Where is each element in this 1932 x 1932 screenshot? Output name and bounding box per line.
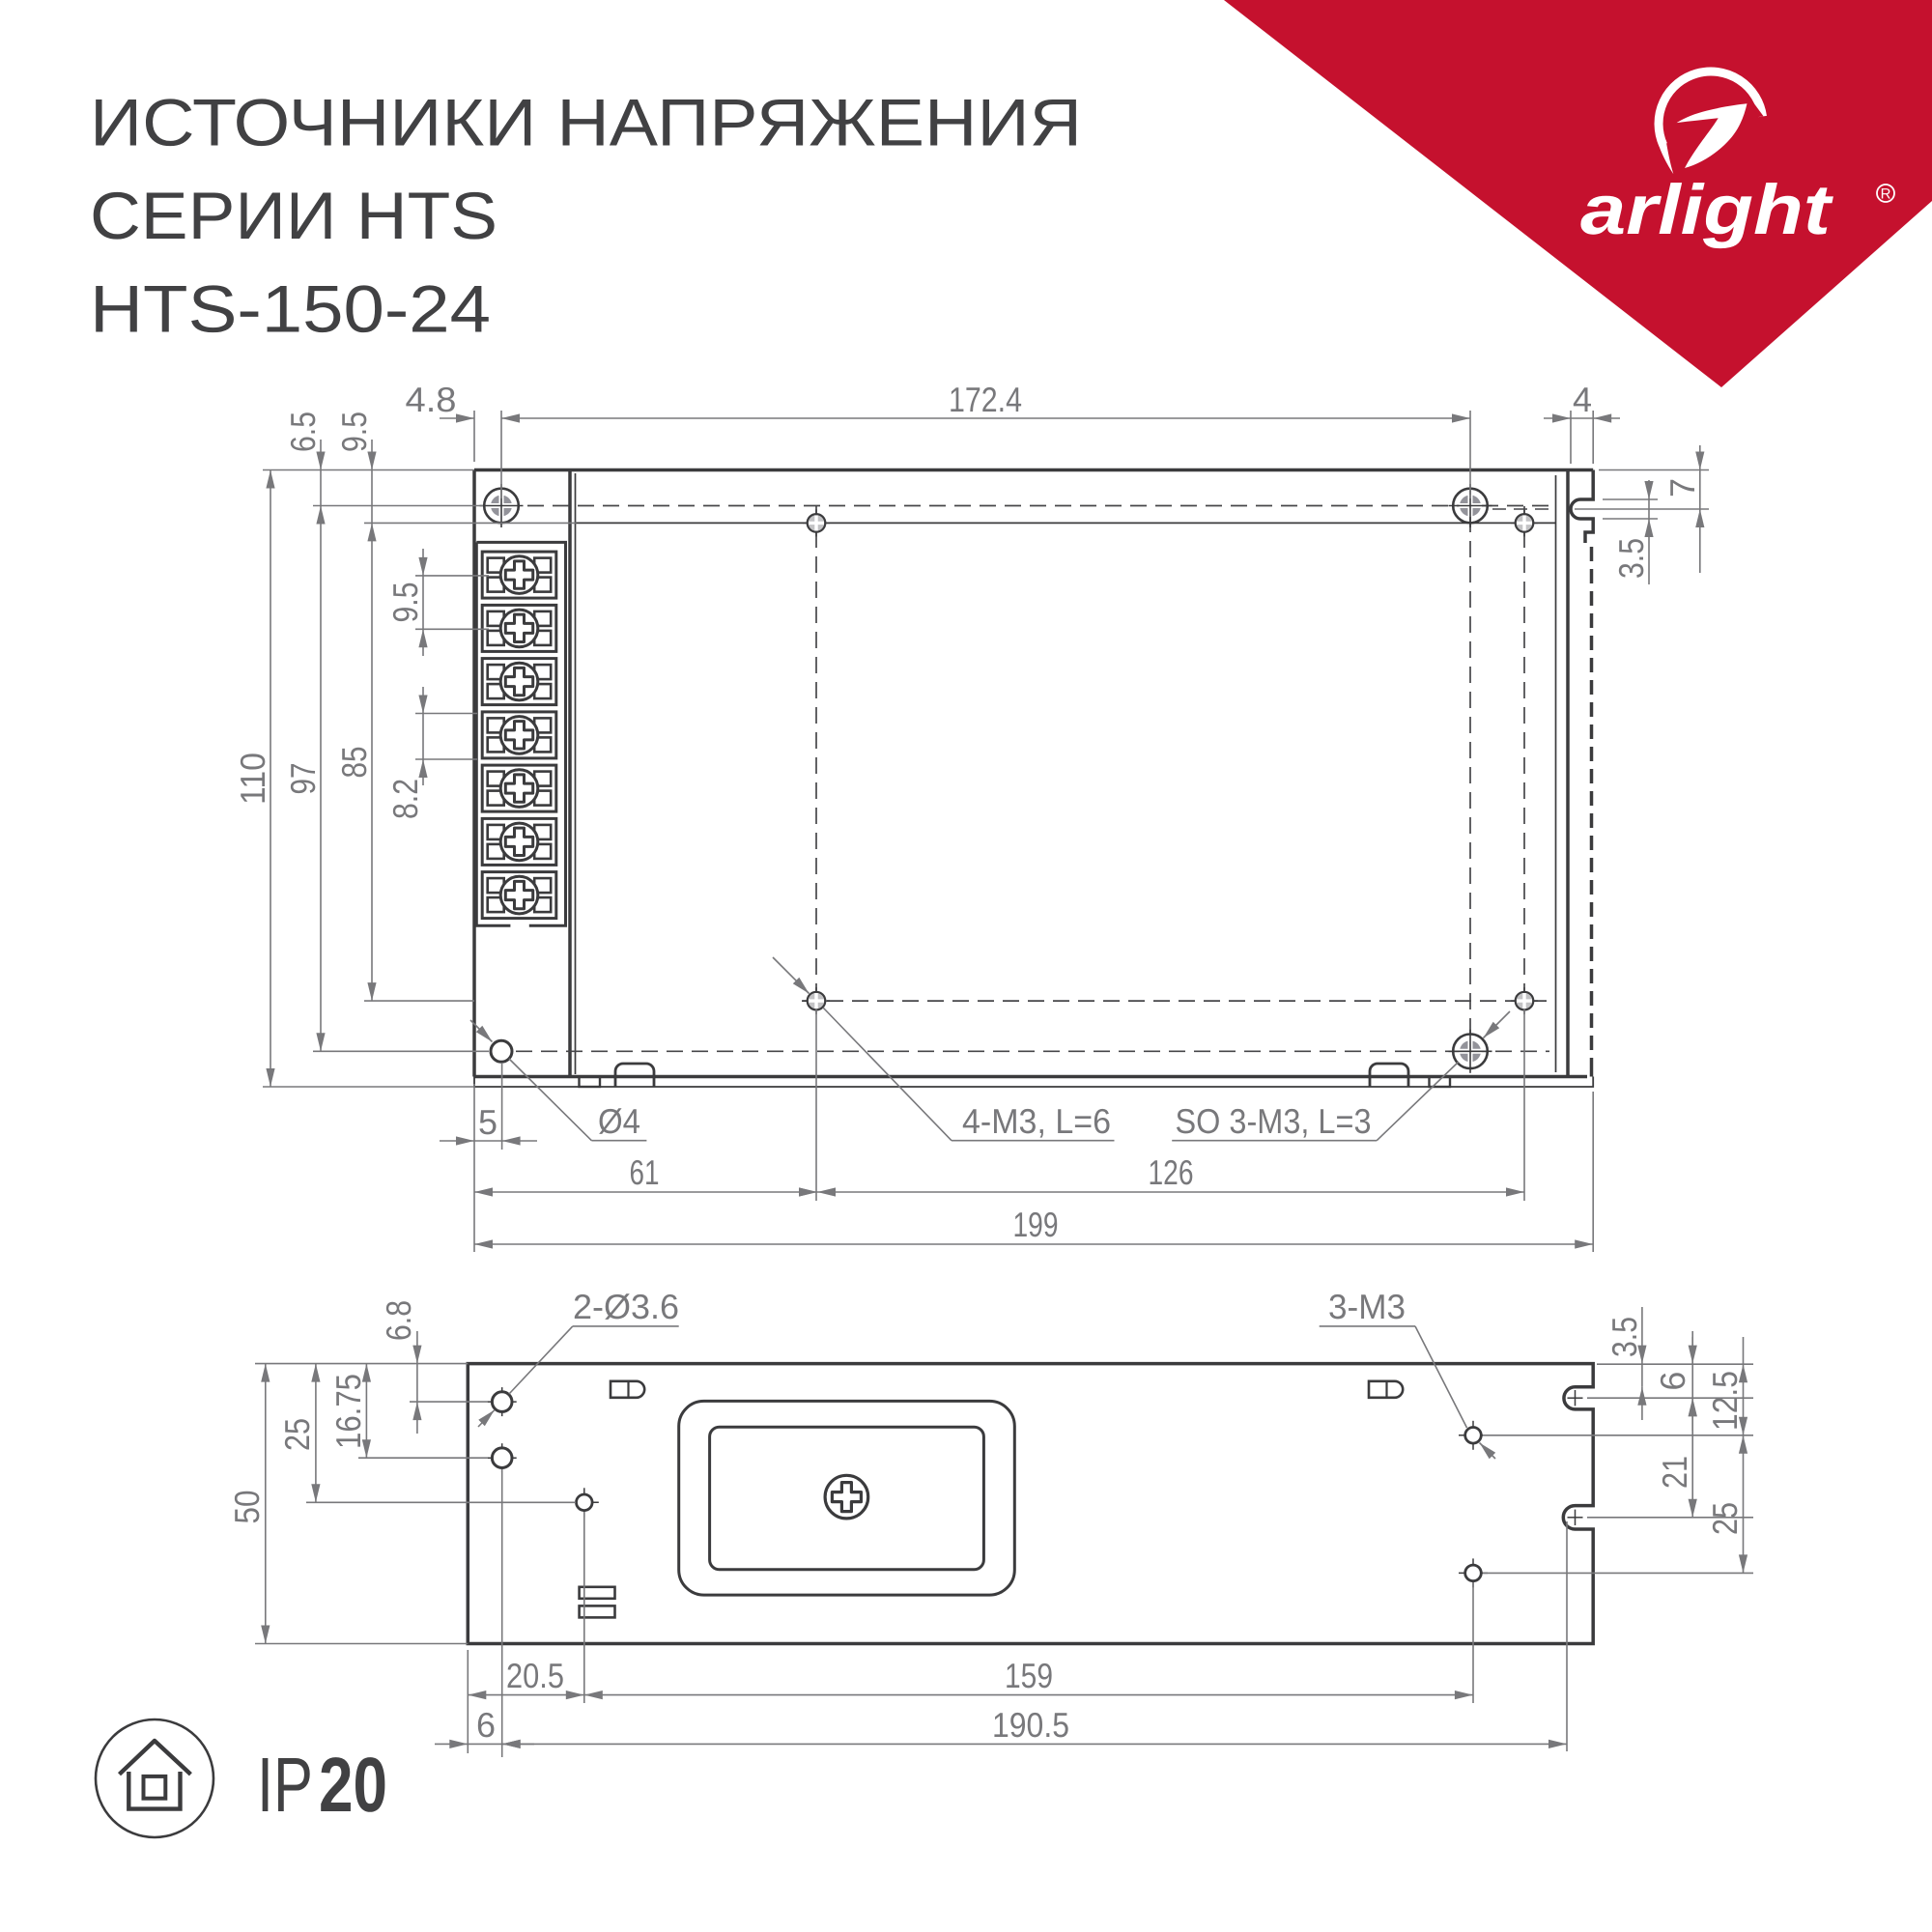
svg-text:SO 3-M3, L=3: SO 3-M3, L=3 — [1176, 1101, 1372, 1141]
svg-text:20: 20 — [319, 1742, 387, 1828]
svg-text:20.5: 20.5 — [506, 1656, 564, 1695]
svg-text:159: 159 — [1005, 1656, 1053, 1695]
svg-text:21: 21 — [1655, 1456, 1694, 1489]
svg-text:110: 110 — [233, 753, 272, 805]
svg-text:IP: IP — [257, 1742, 313, 1828]
svg-text:3.5: 3.5 — [1611, 538, 1651, 579]
svg-text:25: 25 — [1705, 1502, 1745, 1535]
svg-text:СЕРИИ HTS: СЕРИИ HTS — [90, 179, 497, 253]
svg-text:5: 5 — [478, 1102, 497, 1142]
svg-text:190.5: 190.5 — [992, 1705, 1069, 1745]
svg-text:16.75: 16.75 — [328, 1374, 368, 1449]
svg-text:199: 199 — [1013, 1205, 1059, 1244]
svg-text:ИСТОЧНИКИ НАПРЯЖЕНИЯ: ИСТОЧНИКИ НАПРЯЖЕНИЯ — [90, 86, 1082, 160]
svg-text:97: 97 — [283, 763, 323, 795]
svg-text:85: 85 — [334, 747, 374, 779]
svg-text:12.5: 12.5 — [1705, 1371, 1745, 1431]
svg-text:6.5: 6.5 — [283, 412, 323, 452]
svg-text:6: 6 — [476, 1705, 496, 1745]
svg-text:4: 4 — [1573, 380, 1592, 419]
svg-text:2-Ø3.6: 2-Ø3.6 — [573, 1287, 679, 1326]
svg-text:arlight: arlight — [1580, 171, 1833, 249]
svg-text:9.5: 9.5 — [334, 412, 374, 452]
svg-text:9.5: 9.5 — [385, 582, 425, 623]
svg-text:R: R — [1881, 186, 1891, 203]
svg-text:4.8: 4.8 — [406, 380, 457, 419]
svg-text:HTS-150-24: HTS-150-24 — [90, 272, 491, 347]
svg-text:Ø4: Ø4 — [598, 1101, 640, 1141]
svg-text:25: 25 — [277, 1418, 317, 1451]
svg-text:3-M3: 3-M3 — [1328, 1287, 1406, 1326]
svg-text:172.4: 172.4 — [949, 380, 1022, 419]
svg-text:7: 7 — [1662, 478, 1702, 497]
svg-text:6: 6 — [1653, 1372, 1692, 1391]
svg-text:8.2: 8.2 — [385, 779, 425, 819]
svg-text:3.5: 3.5 — [1605, 1317, 1644, 1357]
svg-text:4-M3, L=6: 4-M3, L=6 — [962, 1101, 1111, 1141]
svg-text:50: 50 — [227, 1491, 267, 1524]
svg-text:6.8: 6.8 — [379, 1300, 418, 1341]
svg-text:61: 61 — [630, 1152, 660, 1192]
svg-text:126: 126 — [1149, 1152, 1194, 1192]
